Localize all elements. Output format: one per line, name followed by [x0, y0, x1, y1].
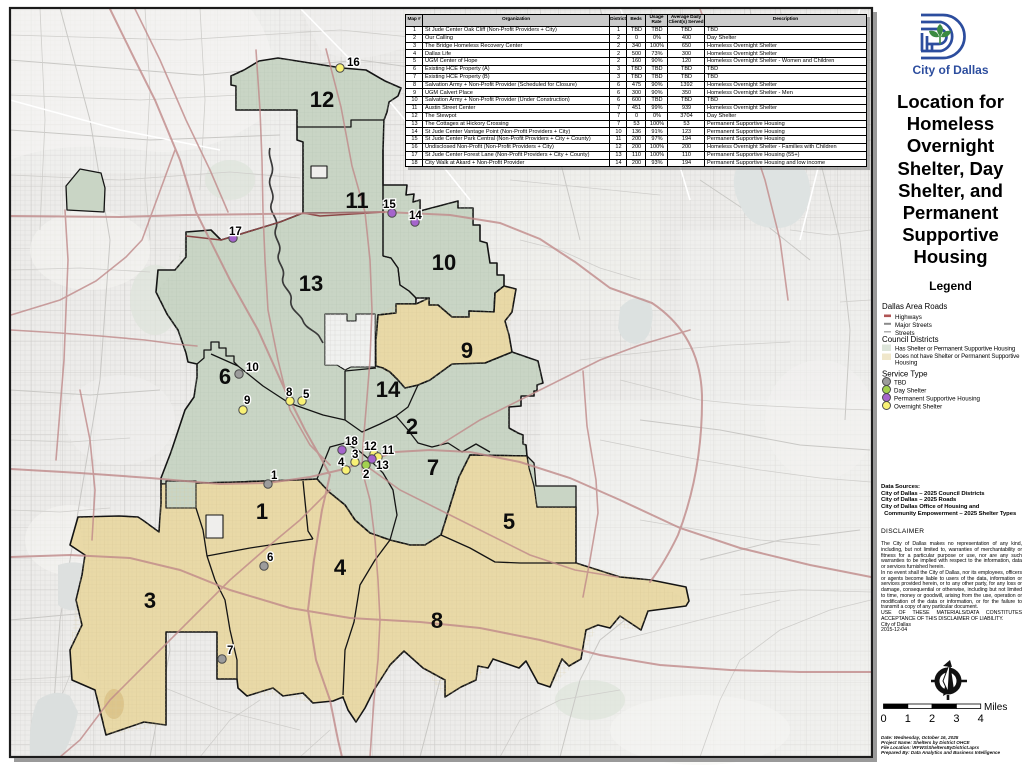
svg-text:1: 1	[905, 713, 911, 725]
svg-text:Council Districts: Council Districts	[882, 335, 939, 344]
svg-text:17: 17	[229, 226, 242, 238]
svg-text:5: 5	[303, 389, 310, 401]
svg-text:6: 6	[267, 552, 273, 564]
svg-text:2: 2	[929, 713, 935, 725]
svg-text:10: 10	[432, 250, 456, 275]
svg-text:6: 6	[219, 364, 231, 389]
svg-text:4: 4	[978, 713, 984, 725]
svg-text:8: 8	[286, 387, 293, 399]
svg-text:Day Shelter: Day Shelter	[894, 388, 926, 395]
svg-text:2: 2	[363, 469, 369, 481]
svg-text:0: 0	[880, 713, 886, 725]
svg-text:10: 10	[246, 362, 259, 374]
svg-text:7: 7	[427, 455, 439, 480]
svg-text:12: 12	[310, 87, 334, 112]
svg-text:16: 16	[347, 57, 360, 69]
svg-text:4: 4	[338, 457, 345, 469]
svg-text:13: 13	[299, 271, 323, 296]
svg-text:Permanent Supportive Housing: Permanent Supportive Housing	[894, 396, 981, 403]
svg-text:2: 2	[406, 414, 418, 439]
svg-text:3: 3	[953, 713, 959, 725]
svg-text:5: 5	[503, 509, 515, 534]
svg-text:9: 9	[461, 338, 473, 363]
svg-text:Housing: Housing	[895, 360, 917, 367]
svg-text:1: 1	[256, 499, 268, 524]
svg-text:3: 3	[144, 588, 156, 613]
svg-text:Service Type: Service Type	[882, 370, 928, 379]
svg-text:3: 3	[352, 449, 358, 461]
svg-text:14: 14	[376, 377, 401, 402]
svg-text:18: 18	[345, 436, 358, 448]
svg-text:12: 12	[364, 441, 377, 453]
svg-text:4: 4	[334, 555, 347, 580]
svg-text:Major Streets: Major Streets	[895, 322, 932, 329]
svg-text:14: 14	[409, 210, 422, 222]
svg-text:Dallas Area Roads: Dallas Area Roads	[882, 302, 947, 311]
svg-text:Miles: Miles	[984, 702, 1007, 713]
svg-text:1: 1	[271, 470, 278, 482]
svg-text:Highways: Highways	[895, 314, 922, 321]
svg-text:9: 9	[244, 395, 250, 407]
svg-text:13: 13	[376, 460, 389, 472]
svg-text:Overnight Shelter: Overnight Shelter	[894, 404, 942, 411]
svg-text:15: 15	[383, 199, 396, 211]
svg-text:TBD: TBD	[894, 380, 907, 387]
svg-text:7: 7	[227, 645, 233, 657]
svg-text:11: 11	[382, 445, 395, 457]
svg-text:Has Shelter or Permanent Suppo: Has Shelter or Permanent Supportive Hous…	[895, 346, 1015, 353]
svg-text:11: 11	[345, 188, 368, 213]
svg-text:8: 8	[431, 608, 443, 633]
